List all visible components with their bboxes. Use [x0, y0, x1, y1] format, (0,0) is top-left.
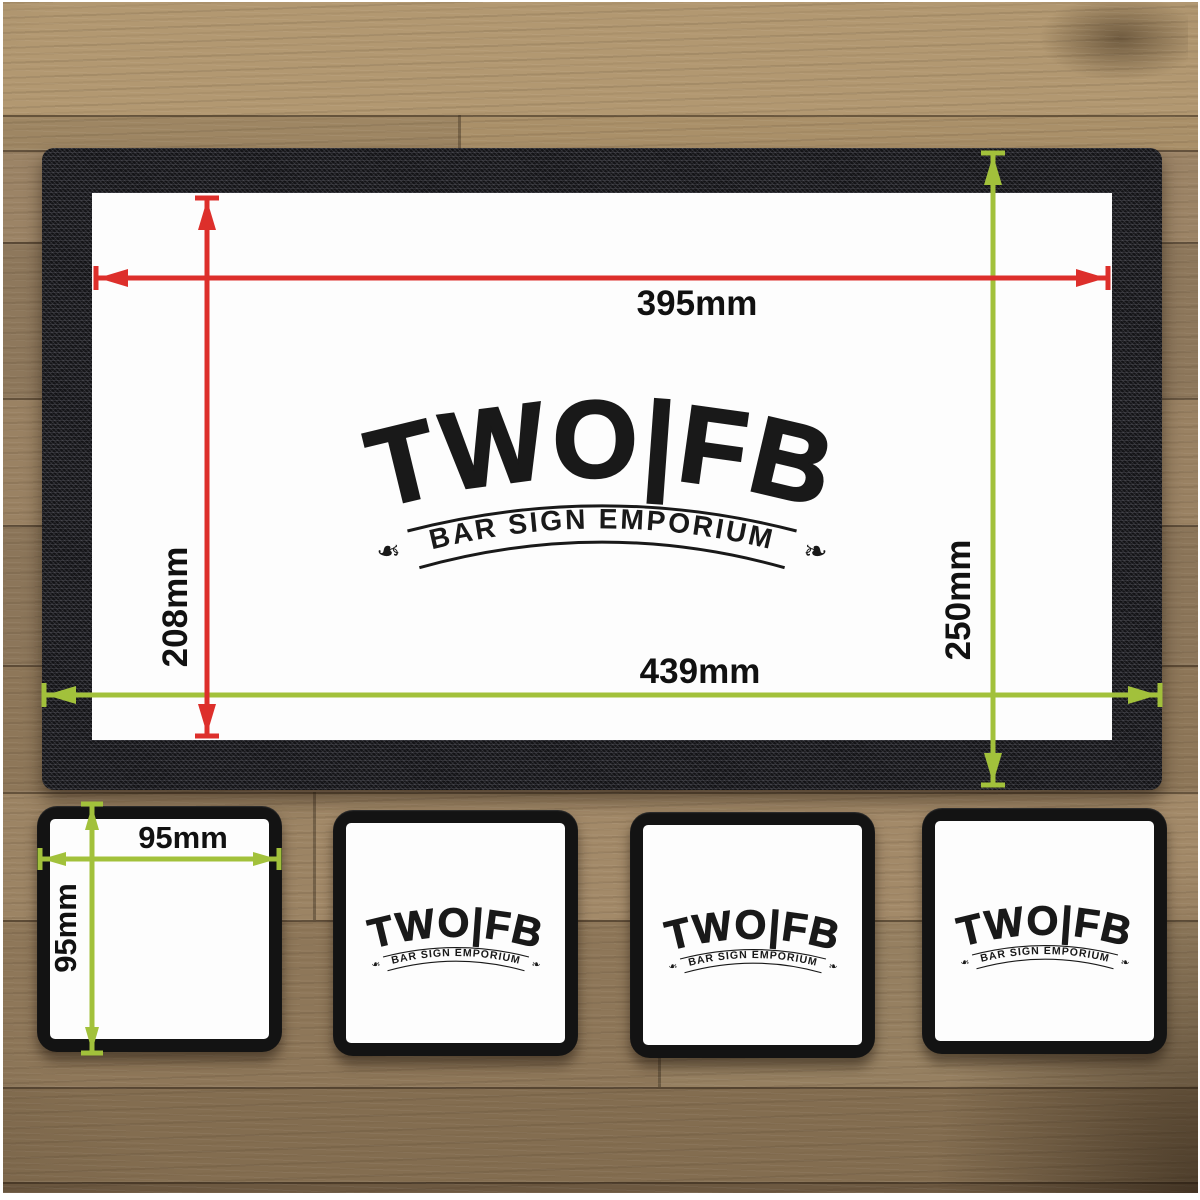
coaster-height-label: 95mm [48, 883, 84, 973]
coaster-print-area [346, 823, 565, 1043]
coaster-with-logo [630, 812, 875, 1058]
twofb-logo [346, 356, 858, 578]
inner-height-label: 208mm [156, 547, 196, 668]
coaster-with-logo [333, 810, 578, 1056]
twofb-logo [657, 893, 849, 977]
outer-width-label: 439mm [640, 652, 761, 692]
coaster-print-area [643, 825, 862, 1045]
twofb-logo [360, 891, 552, 975]
bar-runner-mat [42, 148, 1162, 790]
outer-height-label: 250mm [939, 540, 979, 661]
coaster-print-area [935, 821, 1154, 1041]
twofb-logo [949, 889, 1141, 973]
inner-width-label: 395mm [637, 284, 758, 324]
product-image-canvas: TWO|FB BAR SIGN EMPORIUM ❧ ❧ [0, 0, 1200, 1200]
coaster-width-label: 95mm [138, 820, 228, 856]
coaster-with-logo [922, 808, 1167, 1054]
